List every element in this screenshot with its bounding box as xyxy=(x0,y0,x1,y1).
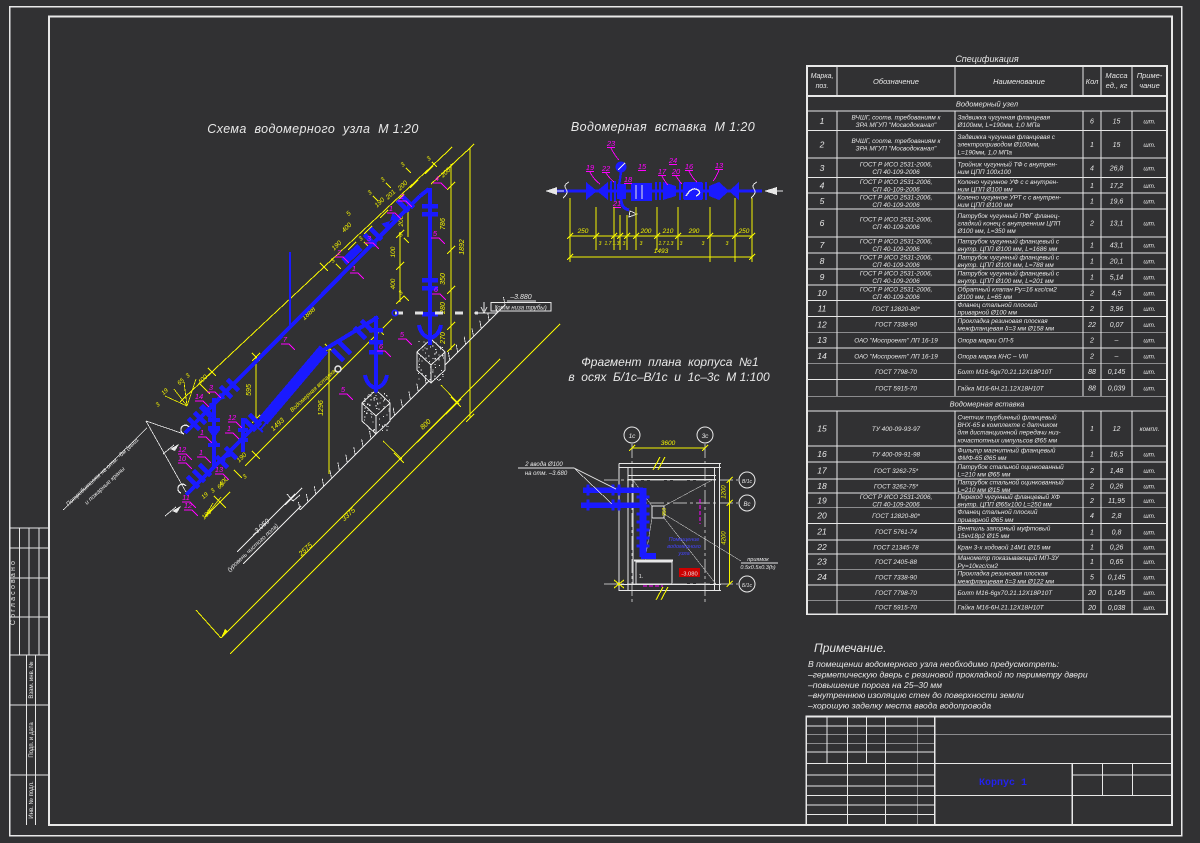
svg-text:Обозначение: Обозначение xyxy=(873,77,919,86)
svg-text:1: 1 xyxy=(1090,559,1094,566)
svg-text:приварной Ø65 мм: приварной Ø65 мм xyxy=(958,516,1015,524)
svg-text:ТУ 400-09-91-98: ТУ 400-09-91-98 xyxy=(872,451,921,458)
svg-text:ГОСТ Р ИСО 2531-2006,: ГОСТ Р ИСО 2531-2006, xyxy=(860,494,933,501)
svg-text:350: 350 xyxy=(440,273,447,285)
svg-text:3: 3 xyxy=(820,163,825,173)
svg-text:290: 290 xyxy=(688,228,700,235)
svg-text:В/1с: В/1с xyxy=(742,479,753,485)
svg-text:приямок: приямок xyxy=(747,557,769,563)
svg-text:5,14: 5,14 xyxy=(1110,275,1124,282)
svg-text:ГОСТ Р ИСО 2531-2006,: ГОСТ Р ИСО 2531-2006, xyxy=(860,239,933,246)
svg-text:ГОСТ 12820-80*: ГОСТ 12820-80* xyxy=(872,306,920,313)
svg-text:1: 1 xyxy=(227,424,231,433)
svg-text:Вс: Вс xyxy=(743,502,750,508)
svg-text:1.3: 1.3 xyxy=(613,241,620,247)
svg-text:ГОСТ Р ИСО 2531-2006,: ГОСТ Р ИСО 2531-2006, xyxy=(860,179,933,186)
svg-text:250: 250 xyxy=(577,228,589,235)
svg-text:СП 40-109-2006: СП 40-109-2006 xyxy=(872,246,920,253)
svg-text:ним ЦПП Ø100 мм: ним ЦПП Ø100 мм xyxy=(958,186,1014,193)
svg-text:0,8: 0,8 xyxy=(1112,529,1122,536)
svg-text:для дистанционной передачи низ: для дистанционной передачи низ- xyxy=(958,429,1061,437)
svg-text:1: 1 xyxy=(1090,183,1094,190)
svg-text:ГОСТ Р ИСО 2531-2006,: ГОСТ Р ИСО 2531-2006, xyxy=(860,217,933,224)
svg-text:СП 40-109-2006: СП 40-109-2006 xyxy=(872,202,920,209)
svg-text:Спецификация: Спецификация xyxy=(955,54,1019,64)
svg-text:ГОСТ Р ИСО 2531-2006,: ГОСТ Р ИСО 2531-2006, xyxy=(860,161,933,168)
svg-text:786: 786 xyxy=(440,218,447,230)
svg-text:1: 1 xyxy=(1090,259,1094,266)
svg-text:6: 6 xyxy=(1090,118,1094,125)
svg-text:Болт М16-6gх70.21.12Х18Р10Т: Болт М16-6gх70.21.12Х18Р10Т xyxy=(958,590,1054,597)
svg-text:Примечание.: Примечание. xyxy=(814,641,886,655)
svg-text:шт.: шт. xyxy=(1143,545,1155,552)
svg-text:Опора марка КНС – VIII: Опора марка КНС – VIII xyxy=(958,353,1029,360)
svg-text:24: 24 xyxy=(816,572,827,582)
svg-text:Водомерный узел: Водомерный узел xyxy=(956,100,1019,109)
svg-text:ГОСТ 7338-90: ГОСТ 7338-90 xyxy=(875,575,917,582)
svg-text:межфланцевая δ=3 мм Ø122 мм: межфланцевая δ=3 мм Ø122 мм xyxy=(958,578,1055,585)
svg-text:4200: 4200 xyxy=(722,531,728,545)
svg-text:–: – xyxy=(1114,338,1119,345)
svg-text:Фланец стальной плоский: Фланец стальной плоский xyxy=(958,508,1038,516)
svg-text:4: 4 xyxy=(435,174,439,183)
svg-text:12: 12 xyxy=(1113,426,1121,433)
svg-text:СП 40-109-2006: СП 40-109-2006 xyxy=(872,294,920,301)
svg-text:1: 1 xyxy=(1090,426,1094,433)
svg-text:водомерного: водомерного xyxy=(667,544,701,550)
svg-text:2: 2 xyxy=(1089,338,1094,345)
svg-text:22: 22 xyxy=(1087,322,1096,329)
svg-text:ГОСТ 5915-70: ГОСТ 5915-70 xyxy=(875,605,917,612)
svg-text:1.7: 1.7 xyxy=(605,241,612,247)
svg-text:Ø100мм, L=190мм, 1,0 МПа: Ø100мм, L=190мм, 1,0 МПа xyxy=(957,122,1041,129)
svg-text:19: 19 xyxy=(586,163,595,172)
svg-text:L=190мм, 1,0 МПа: L=190мм, 1,0 МПа xyxy=(958,149,1013,156)
svg-text:Водомерная вставка М 1:20: Водомерная вставка М 1:20 xyxy=(571,120,755,134)
svg-text:1: 1 xyxy=(1090,142,1094,149)
svg-text:шт.: шт. xyxy=(1143,275,1155,282)
svg-text:23: 23 xyxy=(606,139,616,148)
svg-text:20: 20 xyxy=(816,511,827,521)
svg-text:приварной Ø100 мм: приварной Ø100 мм xyxy=(958,309,1018,317)
svg-text:ед., кг: ед., кг xyxy=(1106,81,1128,90)
svg-text:ВЧШГ, соотв. требованиям к: ВЧШГ, соотв. требованиям к xyxy=(851,137,941,145)
svg-text:2: 2 xyxy=(336,248,342,257)
svg-text:шт.: шт. xyxy=(1143,605,1155,612)
svg-text:ГОСТ 21345-78: ГОСТ 21345-78 xyxy=(873,544,919,551)
svg-text:3,96: 3,96 xyxy=(1110,306,1124,313)
svg-text:Кран 3-х ходовой 14М1 Ø15 мм: Кран 3-х ходовой 14М1 Ø15 мм xyxy=(958,543,1052,551)
svg-text:шт.: шт. xyxy=(1143,142,1155,149)
svg-text:Обратный клапан Ру=16 кгс/см2: Обратный клапан Ру=16 кгс/см2 xyxy=(958,285,1058,293)
svg-text:1493: 1493 xyxy=(654,248,669,255)
svg-text:2: 2 xyxy=(1089,484,1094,491)
svg-text:0,26: 0,26 xyxy=(1110,484,1124,491)
svg-text:1.3: 1.3 xyxy=(667,241,674,247)
svg-text:2: 2 xyxy=(1089,221,1094,228)
svg-text:12: 12 xyxy=(817,319,827,329)
svg-text:ГОСТ 7798-70: ГОСТ 7798-70 xyxy=(875,590,917,597)
svg-text:–герметическую дверь с резинов: –герметическую дверь с резиновой проклад… xyxy=(807,669,1088,679)
svg-text:Тройник чугунный ТФ с внутрен-: Тройник чугунный ТФ с внутрен- xyxy=(958,160,1058,168)
svg-text:Манометр показывающий МП-3У: Манометр показывающий МП-3У xyxy=(958,554,1060,562)
svg-text:22: 22 xyxy=(816,542,827,552)
svg-text:узла: узла xyxy=(677,551,689,557)
svg-text:26,8: 26,8 xyxy=(1109,165,1124,172)
svg-text:ним ЦПП 100х100: ним ЦПП 100х100 xyxy=(958,169,1012,176)
svg-text:Ø100 мм, L=350 мм: Ø100 мм, L=350 мм xyxy=(957,228,1017,235)
svg-text:3: 3 xyxy=(623,241,626,247)
svg-text:2,8: 2,8 xyxy=(1111,513,1122,520)
svg-text:3: 3 xyxy=(680,241,683,247)
svg-text:17: 17 xyxy=(817,465,827,475)
svg-text:15: 15 xyxy=(638,162,647,171)
svg-text:2: 2 xyxy=(1089,353,1094,360)
svg-text:0,038: 0,038 xyxy=(1108,605,1126,612)
svg-text:15: 15 xyxy=(1113,118,1121,125)
svg-text:(отм низа трубы): (отм низа трубы) xyxy=(495,306,546,312)
svg-text:ОАО "Моспроект" ЛП 16-19: ОАО "Моспроект" ЛП 16-19 xyxy=(854,353,938,360)
svg-text:шт.: шт. xyxy=(1143,338,1155,345)
svg-text:15кч18р2 Ø15 мм: 15кч18р2 Ø15 мм xyxy=(958,533,1011,540)
svg-text:СП 40-109-2006: СП 40-109-2006 xyxy=(872,224,920,231)
svg-text:ОАО "Моспроект" ЛП 16-19: ОАО "Моспроект" ЛП 16-19 xyxy=(854,338,938,345)
svg-text:Патрубок стальной оцинкованный: Патрубок стальной оцинкованный xyxy=(958,463,1065,471)
svg-text:Схема водомерного узла М 1:: Схема водомерного узла М 1:20 xyxy=(207,122,418,136)
svg-text:ГОСТ 2405-88: ГОСТ 2405-88 xyxy=(875,559,917,566)
svg-text:Водомерная вставка: Водомерная вставка xyxy=(950,400,1025,409)
svg-text:16,5: 16,5 xyxy=(1110,452,1124,459)
svg-text:Наименование: Наименование xyxy=(993,77,1045,86)
svg-text:шт.: шт. xyxy=(1143,369,1155,376)
svg-text:11,95: 11,95 xyxy=(1108,498,1125,505)
svg-text:Помещение: Помещение xyxy=(669,537,700,543)
svg-text:шт.: шт. xyxy=(1143,243,1155,250)
svg-text:1.7: 1.7 xyxy=(659,241,666,247)
svg-text:Переход чугунный фланцевый ХФ: Переход чугунный фланцевый ХФ xyxy=(958,493,1061,501)
svg-text:ГОСТ 12820-80*: ГОСТ 12820-80* xyxy=(872,513,920,520)
svg-text:шт.: шт. xyxy=(1143,468,1155,475)
svg-text:4,5: 4,5 xyxy=(1112,290,1122,297)
svg-text:22: 22 xyxy=(601,164,611,173)
svg-text:ЗРА МГУП "Мосводоканал": ЗРА МГУП "Мосводоканал" xyxy=(856,144,937,152)
svg-text:Патрубок чугунный фланцевый с: Патрубок чугунный фланцевый с xyxy=(958,238,1060,246)
svg-text:0.5х0.5х0.3(h): 0.5х0.5х0.3(h) xyxy=(740,565,775,571)
svg-text:Патрубок чугунный ПФГ фланец-: Патрубок чугунный ПФГ фланец- xyxy=(958,212,1060,220)
svg-text:шт.: шт. xyxy=(1143,529,1155,536)
svg-text:межфланцевая δ=3 мм Ø158 мм: межфланцевая δ=3 мм Ø158 мм xyxy=(958,326,1055,333)
svg-text:13: 13 xyxy=(215,465,224,474)
svg-text:1: 1 xyxy=(352,264,356,273)
svg-text:ГОСТ 7338-90: ГОСТ 7338-90 xyxy=(875,322,917,329)
svg-text:внутр. ЦПП Ø100 мм, L=201 мм: внутр. ЦПП Ø100 мм, L=201 мм xyxy=(958,278,1055,285)
svg-text:0,145: 0,145 xyxy=(1108,575,1126,582)
svg-text:21: 21 xyxy=(612,199,621,208)
svg-text:внутр. ЦПП Ø65х100 L=250 мм: внутр. ЦПП Ø65х100 L=250 мм xyxy=(958,502,1053,509)
svg-text:3: 3 xyxy=(726,241,729,247)
svg-text:Фрагмент плана корпуса №1: Фрагмент плана корпуса №1 xyxy=(581,355,758,369)
svg-text:ГОСТ Р ИСО 2531-2006,: ГОСТ Р ИСО 2531-2006, xyxy=(860,195,933,202)
svg-text:в осях Б/1с–В/1с и 1с–3с: в осях Б/1с–В/1с и 1с–3с М 1:100 xyxy=(568,370,770,384)
svg-text:Прокладка резиновая плоская: Прокладка резиновая плоская xyxy=(958,570,1049,578)
svg-text:1.: 1. xyxy=(639,574,644,580)
svg-text:5: 5 xyxy=(1090,575,1094,582)
svg-text:595: 595 xyxy=(246,384,253,396)
svg-text:Б/1с: Б/1с xyxy=(742,583,752,589)
svg-text:3с: 3с xyxy=(702,433,710,440)
svg-text:19: 19 xyxy=(817,495,827,505)
svg-text:Корпус 1: Корпус 1 xyxy=(979,778,1027,789)
svg-text:1: 1 xyxy=(199,448,203,457)
svg-text:шт.: шт. xyxy=(1143,290,1155,297)
svg-text:21: 21 xyxy=(816,527,827,537)
svg-text:ВЧШГ, соотв. требованиям к: ВЧШГ, соотв. требованиям к xyxy=(851,113,941,121)
svg-text:электроприводом Ø100мм,: электроприводом Ø100мм, xyxy=(958,141,1041,149)
svg-text:Фильтр магнитный фланцевый: Фильтр магнитный фланцевый xyxy=(958,447,1056,455)
svg-text:ГОСТ 3262-75*: ГОСТ 3262-75* xyxy=(874,483,919,490)
svg-text:шт.: шт. xyxy=(1143,165,1155,172)
svg-text:17,2: 17,2 xyxy=(1110,183,1124,190)
svg-text:4: 4 xyxy=(1090,165,1094,172)
svg-text:10: 10 xyxy=(178,454,187,463)
svg-text:ГОСТ 5915-70: ГОСТ 5915-70 xyxy=(875,385,917,392)
svg-text:13,1: 13,1 xyxy=(1110,221,1124,228)
svg-text:шт.: шт. xyxy=(1143,259,1155,266)
svg-text:-3.080: -3.080 xyxy=(681,572,697,578)
svg-text:4: 4 xyxy=(820,180,825,190)
svg-text:3: 3 xyxy=(702,241,705,247)
svg-text:16: 16 xyxy=(685,162,694,171)
svg-text:400: 400 xyxy=(390,278,397,289)
svg-text:ним ЦПП Ø100 мм: ним ЦПП Ø100 мм xyxy=(958,202,1014,209)
svg-text:шт.: шт. xyxy=(1143,221,1155,228)
svg-text:19,6: 19,6 xyxy=(1110,199,1124,206)
svg-text:чание: чание xyxy=(1139,81,1160,90)
svg-text:23: 23 xyxy=(816,557,827,567)
svg-text:ТУ 400-09-93-97: ТУ 400-09-93-97 xyxy=(872,426,921,433)
svg-text:11: 11 xyxy=(818,304,827,314)
svg-text:ВНХ-65 в комплекте с датчиком: ВНХ-65 в комплекте с датчиком xyxy=(958,421,1058,429)
svg-text:1,48: 1,48 xyxy=(1110,468,1124,475)
svg-text:0,07: 0,07 xyxy=(1110,322,1125,329)
svg-text:Патрубок чугунный фланцевый с: Патрубок чугунный фланцевый с xyxy=(958,270,1060,278)
svg-text:12: 12 xyxy=(178,445,187,454)
svg-text:15: 15 xyxy=(817,424,827,434)
svg-text:6: 6 xyxy=(820,218,825,228)
svg-text:Инв. № подл.: Инв. № подл. xyxy=(28,781,35,819)
svg-text:2: 2 xyxy=(819,139,825,149)
svg-text:Согласовано: Согласовано xyxy=(10,559,17,625)
svg-text:100: 100 xyxy=(390,246,397,257)
svg-text:7: 7 xyxy=(820,240,825,250)
svg-text:Счетчик турбинный фланцевый: Счетчик турбинный фланцевый xyxy=(958,414,1058,422)
svg-text:СП 40-109-2006: СП 40-109-2006 xyxy=(872,278,920,285)
svg-text:1200: 1200 xyxy=(722,485,728,499)
svg-text:ГОСТ Р ИСО 2531-2006,: ГОСТ Р ИСО 2531-2006, xyxy=(860,286,933,293)
svg-text:1: 1 xyxy=(389,204,393,213)
svg-text:200: 200 xyxy=(640,228,652,235)
svg-text:18: 18 xyxy=(624,175,633,184)
svg-text:Опора марки ОП-5: Опора марки ОП-5 xyxy=(958,338,1014,345)
svg-text:шт.: шт. xyxy=(1143,559,1155,566)
svg-text:кочастотных импульсов Ø65 мм: кочастотных импульсов Ø65 мм xyxy=(958,437,1058,444)
svg-text:1: 1 xyxy=(1090,199,1094,206)
svg-text:12: 12 xyxy=(184,501,193,510)
svg-text:20: 20 xyxy=(1087,590,1096,597)
svg-text:10: 10 xyxy=(817,288,827,298)
svg-text:ГОСТ 7798-70: ГОСТ 7798-70 xyxy=(875,369,917,376)
svg-text:ГОСТ 5761-74: ГОСТ 5761-74 xyxy=(875,529,917,536)
svg-text:поз.: поз. xyxy=(816,83,829,90)
svg-text:2: 2 xyxy=(399,192,405,201)
svg-text:15: 15 xyxy=(1113,142,1121,149)
svg-text:СП 40-109-2006: СП 40-109-2006 xyxy=(872,262,920,269)
svg-text:ГОСТ Р ИСО 2531-2006,: ГОСТ Р ИСО 2531-2006, xyxy=(860,271,933,278)
svg-text:2: 2 xyxy=(1089,468,1094,475)
svg-text:шт.: шт. xyxy=(1143,575,1155,582)
svg-text:1: 1 xyxy=(1090,275,1094,282)
svg-text:ФМФ-65 Ø65 мм: ФМФ-65 Ø65 мм xyxy=(958,455,1008,462)
svg-text:L=210 мм Ø65 мм: L=210 мм Ø65 мм xyxy=(958,472,1011,479)
svg-text:250: 250 xyxy=(738,228,750,235)
svg-text:88: 88 xyxy=(1088,385,1096,392)
svg-text:1: 1 xyxy=(820,116,825,126)
svg-text:Гайка М16-6Н.21.12Х18Н10Т: Гайка М16-6Н.21.12Х18Н10Т xyxy=(958,604,1045,612)
svg-text:20,1: 20,1 xyxy=(1109,259,1124,266)
svg-text:СП 40-109-2006: СП 40-109-2006 xyxy=(872,502,920,509)
svg-text:1: 1 xyxy=(1090,243,1094,250)
svg-text:шт.: шт. xyxy=(1143,498,1155,505)
svg-text:ЗРА МГУП "Мосводоканал": ЗРА МГУП "Мосводоканал" xyxy=(856,121,937,129)
svg-text:Прокладка резиновая плоская: Прокладка резиновая плоская xyxy=(958,317,1049,325)
svg-text:Патрубок стальной оцинкованный: Патрубок стальной оцинкованный xyxy=(958,479,1065,487)
svg-text:шт.: шт. xyxy=(1143,322,1155,329)
svg-text:–повышение порога на 25–30 мм: –повышение порога на 25–30 мм xyxy=(807,680,942,690)
svg-text:Ру=10кгс/см2: Ру=10кгс/см2 xyxy=(958,563,999,570)
svg-text:2 ввода Ø100: 2 ввода Ø100 xyxy=(524,462,563,468)
svg-text:88: 88 xyxy=(1088,369,1096,376)
svg-text:на отм. –3.680: на отм. –3.680 xyxy=(525,471,568,477)
svg-text:24: 24 xyxy=(668,156,677,165)
svg-text:–: – xyxy=(1114,353,1119,360)
svg-text:внутр. ЦПП Ø100 мм, L=1686 мм: внутр. ЦПП Ø100 мм, L=1686 мм xyxy=(958,246,1058,253)
svg-text:шт.: шт. xyxy=(1143,484,1155,491)
svg-text:гладкий конец с внутренним ЦПП: гладкий конец с внутренним ЦПП xyxy=(958,219,1061,227)
svg-text:2: 2 xyxy=(1089,498,1094,505)
svg-text:18: 18 xyxy=(817,481,827,491)
svg-text:0,145: 0,145 xyxy=(1108,369,1126,376)
svg-text:Патрубок чугунный фланцевый с: Патрубок чугунный фланцевый с xyxy=(958,254,1060,262)
svg-text:13: 13 xyxy=(817,335,827,345)
svg-text:270: 270 xyxy=(440,332,447,345)
svg-text:1: 1 xyxy=(1090,545,1094,552)
svg-text:1892: 1892 xyxy=(459,239,466,255)
svg-text:9: 9 xyxy=(820,272,825,282)
svg-text:Взам. инв. №: Взам. инв. № xyxy=(28,661,35,698)
svg-text:Гайка М16-6Н.21.12Х18Н10Т: Гайка М16-6Н.21.12Х18Н10Т xyxy=(958,384,1045,392)
svg-text:0,26: 0,26 xyxy=(1110,545,1124,552)
svg-text:1с: 1с xyxy=(629,433,637,440)
svg-text:Масса: Масса xyxy=(1105,71,1127,80)
svg-text:шт.: шт. xyxy=(1143,183,1155,190)
svg-text:СП 40-109-2006: СП 40-109-2006 xyxy=(872,169,920,176)
svg-text:Задвижка чугунная фланцевая с: Задвижка чугунная фланцевая с xyxy=(958,133,1056,141)
svg-text:5: 5 xyxy=(820,196,825,206)
svg-text:Вентиль запорный муфтовый: Вентиль запорный муфтовый xyxy=(958,524,1051,532)
svg-text:8: 8 xyxy=(820,256,825,266)
svg-text:шт.: шт. xyxy=(1143,513,1155,520)
svg-text:16: 16 xyxy=(817,449,827,459)
svg-text:В помещении водомерного узла н: В помещении водомерного узла необходимо … xyxy=(808,659,1060,669)
svg-text:Колено чугунное УФ с с внутрен: Колено чугунное УФ с с внутрен- xyxy=(958,179,1059,186)
svg-text:2: 2 xyxy=(1089,306,1094,313)
svg-text:Подп. и дата: Подп. и дата xyxy=(29,722,35,758)
svg-text:0,65: 0,65 xyxy=(1110,559,1124,566)
svg-text:шт.: шт. xyxy=(1143,590,1155,597)
svg-text:0,039: 0,039 xyxy=(1108,385,1126,392)
svg-text:шт.: шт. xyxy=(1143,306,1155,313)
svg-text:шт.: шт. xyxy=(1143,199,1155,206)
svg-text:12: 12 xyxy=(228,413,237,422)
svg-text:–хорошую заделку места ввода в: –хорошую заделку места ввода водопровода xyxy=(807,701,991,711)
svg-text:0,145: 0,145 xyxy=(1108,590,1126,597)
svg-text:1: 1 xyxy=(1090,452,1094,459)
svg-text:17: 17 xyxy=(658,167,667,176)
svg-text:компл.: компл. xyxy=(1140,426,1160,433)
svg-text:2: 2 xyxy=(1089,290,1094,297)
svg-text:шт.: шт. xyxy=(1143,353,1155,360)
svg-text:13: 13 xyxy=(715,161,724,170)
svg-text:210: 210 xyxy=(662,228,674,235)
svg-text:14: 14 xyxy=(817,351,827,361)
svg-text:20: 20 xyxy=(1087,605,1096,612)
svg-text:шт.: шт. xyxy=(1143,385,1155,392)
svg-text:3600: 3600 xyxy=(661,440,676,447)
svg-text:СП 40-109-2006: СП 40-109-2006 xyxy=(872,186,920,193)
svg-text:ГОСТ 3262-75*: ГОСТ 3262-75* xyxy=(874,468,919,475)
svg-text:–3.880: –3.880 xyxy=(509,294,532,301)
svg-text:3: 3 xyxy=(599,241,602,247)
svg-text:внутр. ЦПП Ø100 мм, L=788 мм: внутр. ЦПП Ø100 мм, L=788 мм xyxy=(958,262,1055,269)
svg-text:Кол: Кол xyxy=(1086,77,1099,86)
svg-text:ГОСТ Р ИСО 2531-2006,: ГОСТ Р ИСО 2531-2006, xyxy=(860,255,933,262)
svg-text:1: 1 xyxy=(200,428,204,437)
svg-text:Приме-: Приме- xyxy=(1137,71,1163,80)
svg-text:4: 4 xyxy=(1090,513,1094,520)
svg-text:14: 14 xyxy=(195,392,203,401)
svg-text:Фланец стальной плоский: Фланец стальной плоский xyxy=(958,301,1038,309)
svg-text:Задвижка чугунная фланцевая: Задвижка чугунная фланцевая xyxy=(958,113,1051,121)
svg-text:шт.: шт. xyxy=(1143,452,1155,459)
svg-text:Колено чугунное УРТ с с внутре: Колено чугунное УРТ с с внутрен- xyxy=(958,195,1062,202)
svg-text:350: 350 xyxy=(662,508,668,517)
svg-text:шт.: шт. xyxy=(1143,118,1155,125)
svg-text:20: 20 xyxy=(671,167,681,176)
svg-text:Ø100 мм, L=65 мм: Ø100 мм, L=65 мм xyxy=(957,294,1013,301)
svg-text:1296: 1296 xyxy=(318,400,325,416)
svg-text:Марка,: Марка, xyxy=(811,73,834,80)
svg-text:1: 1 xyxy=(1090,529,1094,536)
svg-text:43,1: 43,1 xyxy=(1110,243,1124,250)
svg-text:3: 3 xyxy=(640,241,643,247)
svg-text:–внутреннюю изоляцию стен до п: –внутреннюю изоляцию стен до поверхности… xyxy=(807,690,1024,700)
svg-text:Болт М16-6gх70.21.12Х18Р10Т: Болт М16-6gх70.21.12Х18Р10Т xyxy=(958,369,1054,376)
